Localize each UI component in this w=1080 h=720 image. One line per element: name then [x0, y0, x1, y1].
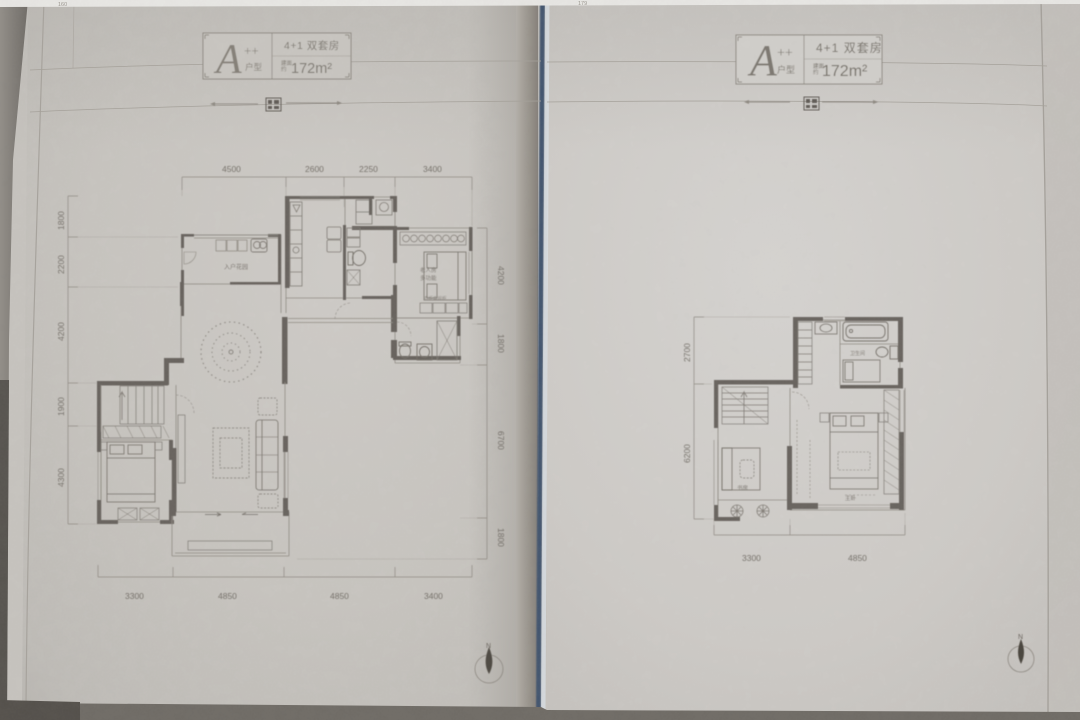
- svg-text:N: N: [1018, 634, 1023, 641]
